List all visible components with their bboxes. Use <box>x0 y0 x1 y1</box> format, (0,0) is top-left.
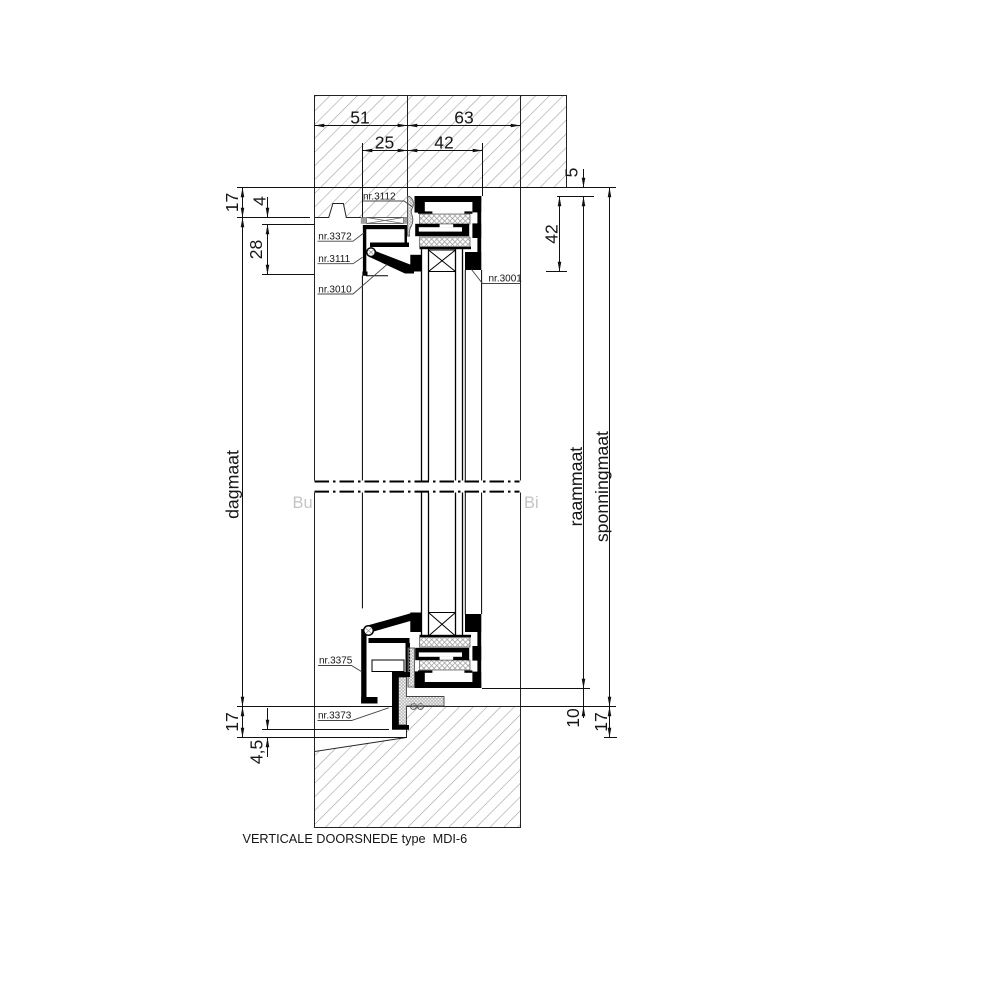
svg-text:4,5: 4,5 <box>247 740 267 764</box>
svg-text:51: 51 <box>350 108 369 128</box>
svg-text:5: 5 <box>562 168 582 178</box>
svg-text:4: 4 <box>250 196 270 206</box>
svg-text:25: 25 <box>375 133 394 153</box>
svg-text:17: 17 <box>222 712 242 731</box>
svg-text:10: 10 <box>563 708 583 728</box>
svg-text:63: 63 <box>454 108 473 128</box>
svg-text:42: 42 <box>542 224 562 243</box>
svg-text:17: 17 <box>222 193 242 212</box>
svg-text:17: 17 <box>591 712 611 731</box>
svg-text:raammaat: raammaat <box>566 447 586 527</box>
svg-text:Bu: Bu <box>293 494 313 512</box>
svg-text:28: 28 <box>246 240 266 259</box>
svg-text:Bi: Bi <box>524 494 539 512</box>
svg-text:dagmaat: dagmaat <box>223 450 243 519</box>
svg-text:sponningmaat: sponningmaat <box>592 431 612 542</box>
svg-text:VERTICALE DOORSNEDE type MDI-: VERTICALE DOORSNEDE type MDI-6 <box>243 832 468 846</box>
svg-text:42: 42 <box>434 133 453 153</box>
